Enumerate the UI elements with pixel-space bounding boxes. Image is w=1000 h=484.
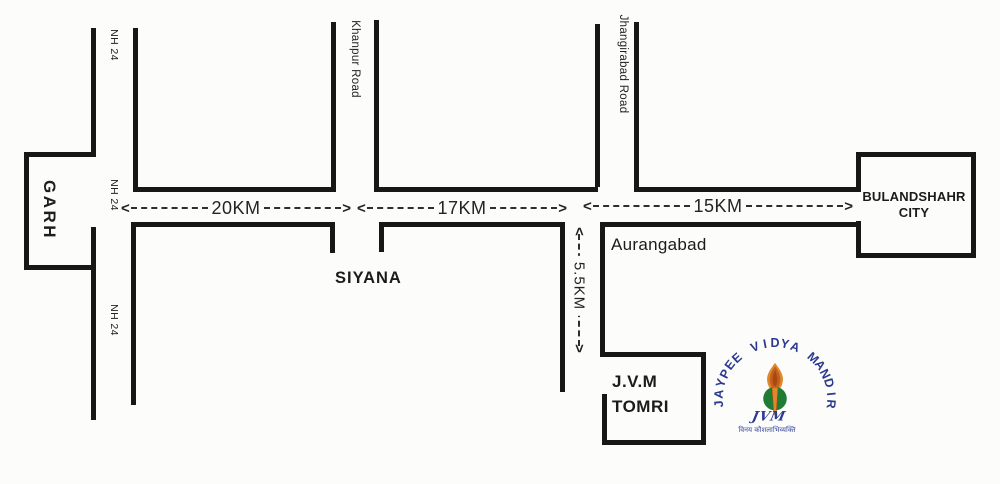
garh-box-left — [24, 152, 29, 270]
logo-monogram: JVM — [751, 410, 788, 425]
distance-label: 5.5KM — [569, 256, 590, 316]
road-line-highway-top — [133, 187, 336, 192]
road-line-nh24-lower-east — [131, 222, 136, 405]
road-line-highway-top — [634, 187, 859, 192]
garh-box-bottom — [24, 265, 96, 270]
distance-label: 17KM — [434, 198, 489, 219]
bulandshahr-box-bottom — [856, 253, 976, 258]
road-line-khanpur-east — [374, 20, 379, 187]
road-line-jvm-west — [560, 222, 565, 392]
arrow-left-icon: < — [120, 201, 131, 216]
bulandshahr-box-right — [971, 152, 976, 258]
jvm-logo: JAYPEE VIDYA MANDIR JVM विनय कौशलाभिव्यक… — [705, 330, 865, 445]
road-line-jvm-east — [600, 222, 605, 357]
place-label-siyana: SIYANA — [335, 269, 402, 288]
place-label-jvm-tomri: J.V.M TOMRI — [612, 369, 669, 419]
distance-arrow-5-5km: < 5.5KM > — [569, 224, 589, 356]
arrow-left-icon: < — [356, 201, 367, 216]
bulandshahr-box-left-lower — [856, 221, 861, 258]
road-line-khanpur-west — [331, 22, 336, 187]
arrow-right-icon: > — [843, 199, 854, 214]
bulandshahr-box-left-upper — [856, 152, 861, 192]
road-line-nh24-lower-west — [91, 227, 96, 420]
distance-label: 20KM — [208, 198, 263, 219]
bulandshahr-box-top — [856, 152, 976, 157]
place-label-bulandshahr-city: BULANDSHAHR CITY — [860, 189, 968, 221]
road-line-highway-bottom — [600, 222, 859, 227]
road-line-jhangirabad-west — [595, 24, 600, 187]
jvm-box-left — [602, 394, 607, 445]
logo-motto: विनय कौशलाभिव्यक्ति — [738, 426, 795, 435]
arrow-left-icon: < — [582, 199, 593, 214]
place-label-aurangabad: Aurangabad — [611, 235, 707, 255]
distance-label: 15KM — [690, 196, 745, 217]
distance-arrow-20km: < 20KM > — [120, 197, 352, 219]
road-line-nh24-upper-west — [91, 28, 96, 154]
distance-arrow-17km: < 17KM > — [356, 197, 568, 219]
jvm-box-top — [602, 352, 706, 357]
arrow-right-icon: > — [341, 201, 352, 216]
road-line-highway-top — [374, 187, 598, 192]
arrow-down-icon: > — [572, 344, 587, 353]
road-line-siyana-stub-west — [330, 222, 335, 253]
garh-box-top — [24, 152, 96, 157]
distance-arrow-15km: < 15KM > — [582, 195, 854, 217]
road-line-siyana-stub-east — [379, 222, 384, 252]
road-line-highway-bottom — [131, 222, 335, 227]
torch-icon — [755, 362, 795, 416]
arrow-right-icon: > — [557, 201, 568, 216]
road-line-highway-bottom — [379, 222, 565, 227]
road-line-nh24-upper-east — [133, 28, 138, 187]
jvm-box-bottom — [602, 440, 706, 445]
route-map: NH 24 Khanpur Road Jhangirabad Road NH 2… — [0, 0, 1000, 484]
road-line-jhangirabad-east — [634, 22, 639, 187]
